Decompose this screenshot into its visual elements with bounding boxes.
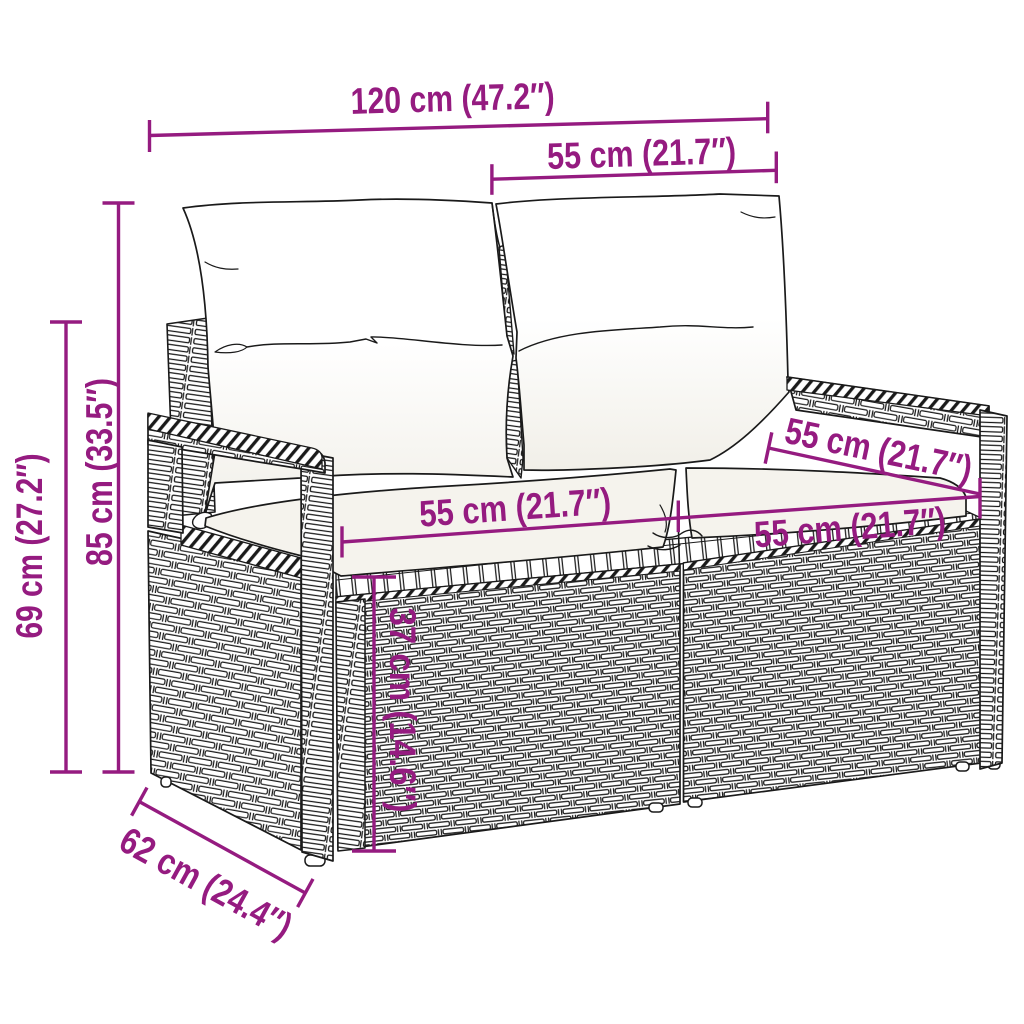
svg-text:120 cm (47.2″): 120 cm (47.2″) (350, 75, 555, 122)
svg-text:55 cm (21.7″): 55 cm (21.7″) (547, 130, 737, 177)
svg-text:69 cm (27.2″): 69 cm (27.2″) (9, 454, 50, 639)
svg-text:37 cm (14.6″): 37 cm (14.6″) (382, 608, 423, 813)
svg-text:85 cm (33.5″): 85 cm (33.5″) (79, 378, 120, 566)
